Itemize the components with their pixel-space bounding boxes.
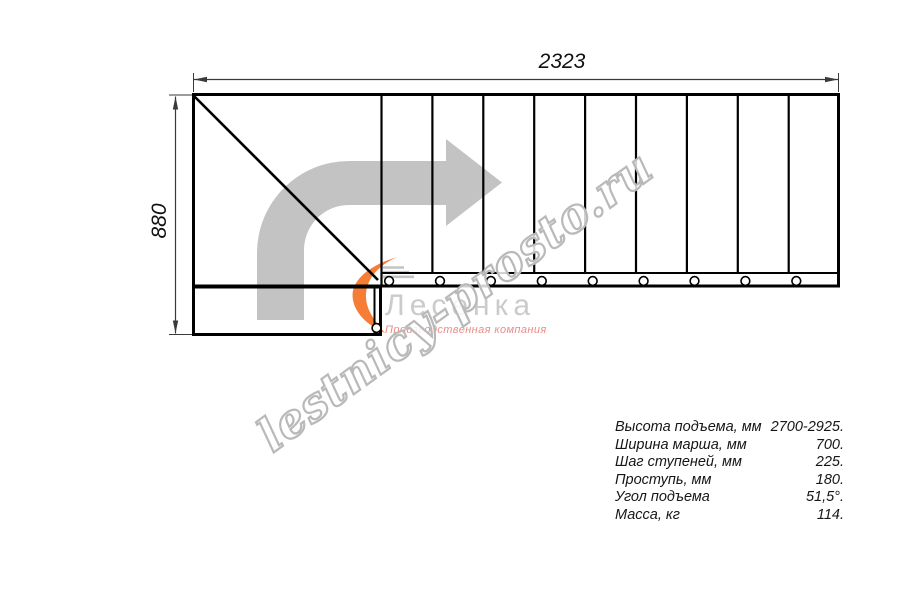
logo-company-name: Лесенка <box>385 289 565 323</box>
spec-row: Масса, кг 114. <box>615 507 844 525</box>
spec-row: Шаг ступеней, мм 225. <box>615 454 844 472</box>
staircase-spec-image: 2323 880 Лесенка Производственная компан… <box>0 0 900 600</box>
spec-value: 225. <box>816 454 844 472</box>
spec-value: 180. <box>816 472 844 490</box>
spec-value: 2700-2925. <box>771 419 844 437</box>
landing-baluster-circle <box>372 324 381 333</box>
spec-value: 51,5°. <box>806 489 844 507</box>
spec-label: Масса, кг <box>615 507 680 525</box>
spec-label: Шаг ступеней, мм <box>615 454 742 472</box>
specs-table: Высота подъема, мм 2700-2925. Ширина мар… <box>615 419 844 524</box>
logo-tagline: Производственная компания <box>385 324 565 336</box>
spec-label: Высота подъема, мм <box>615 419 762 437</box>
spec-row: Ширина марша, мм 700. <box>615 437 844 455</box>
spec-row: Высота подъема, мм 2700-2925. <box>615 419 844 437</box>
spec-label: Проступь, мм <box>615 472 711 490</box>
spec-label: Ширина марша, мм <box>615 437 747 455</box>
dimension-label-height: 880 <box>146 181 174 261</box>
spec-value: 700. <box>816 437 844 455</box>
dimension-label-width: 2323 <box>522 50 602 74</box>
spec-row: Угол подъема 51,5°. <box>615 489 844 507</box>
spec-row: Проступь, мм 180. <box>615 472 844 490</box>
spec-value: 114. <box>817 507 844 525</box>
spec-label: Угол подъема <box>615 489 710 507</box>
